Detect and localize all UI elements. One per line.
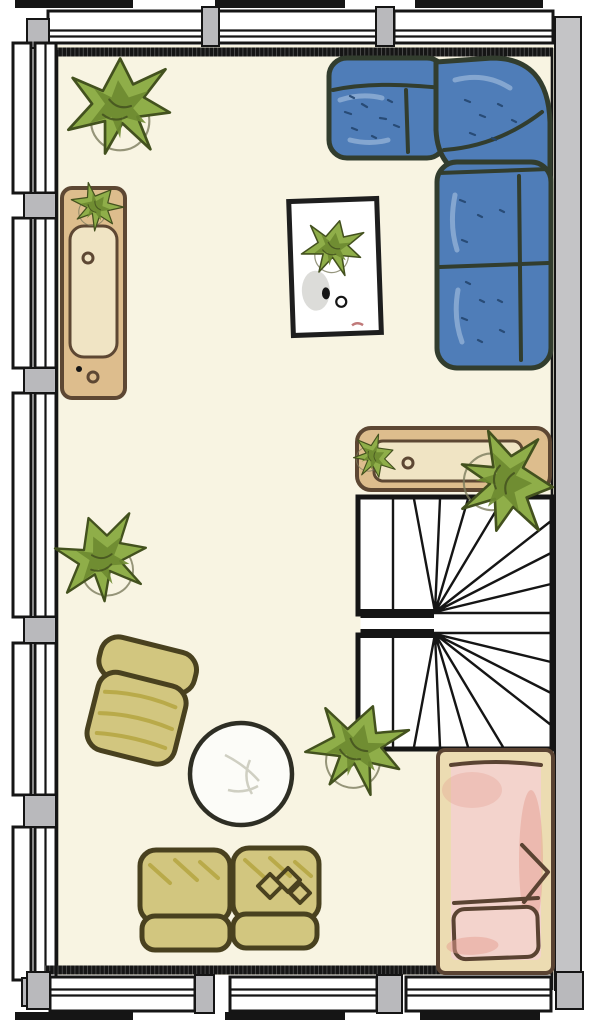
wall-left — [13, 43, 57, 1006]
cabinet-dot — [76, 366, 82, 372]
window-sill-tick — [420, 1012, 540, 1020]
window-sill-tick — [215, 0, 345, 8]
window — [394, 11, 553, 43]
wall-pillar — [24, 193, 56, 218]
table-top — [190, 723, 292, 825]
sofa-section-vertical — [437, 162, 551, 368]
stair-divider-bar — [358, 629, 434, 638]
window-sill-tick — [15, 1012, 133, 1020]
window-sill-tick — [225, 1012, 345, 1020]
loveseat-cushion-left — [140, 850, 230, 922]
window — [13, 43, 56, 193]
wall-pillar — [24, 795, 56, 827]
window — [13, 218, 56, 368]
round-coffee-table — [190, 723, 292, 825]
wall-pillar — [202, 7, 219, 46]
stair-divider-bar — [358, 609, 434, 618]
window — [13, 393, 56, 617]
window-sill-tick — [15, 0, 133, 8]
window — [218, 11, 377, 43]
loveseat — [140, 848, 319, 950]
wall-pillar — [195, 975, 214, 1013]
wall-right — [552, 17, 581, 990]
wall-bottom — [15, 970, 583, 1020]
window — [50, 977, 195, 1011]
window — [230, 977, 377, 1011]
loveseat-front-right — [233, 914, 317, 948]
sofa-section-horizontal — [329, 58, 445, 158]
wall-pillar — [24, 368, 56, 393]
bed — [438, 750, 553, 973]
cabinet-door — [70, 226, 117, 357]
loveseat-front-left — [142, 916, 230, 950]
corner-pillar — [556, 972, 583, 1009]
stairwell-enclosure — [358, 497, 552, 749]
picture-frame — [289, 199, 382, 336]
window — [406, 977, 551, 1011]
blanket-shading — [442, 772, 502, 808]
sofa-section-corner — [436, 58, 550, 177]
party-wall — [555, 17, 581, 990]
floor-plan-canvas — [0, 0, 600, 1020]
corner-pillar — [27, 972, 50, 1009]
stair-entry-opening — [353, 617, 361, 633]
window-sill-tick — [415, 0, 543, 8]
wall-pillar — [24, 617, 56, 643]
floor-plan — [0, 0, 600, 1020]
window — [48, 11, 203, 43]
wall-pillar — [377, 975, 402, 1013]
window — [13, 827, 56, 980]
picture-with-plant — [289, 199, 382, 336]
wall-top — [15, 0, 553, 52]
window — [13, 643, 56, 795]
wall-pillar — [376, 7, 394, 46]
staircase — [353, 497, 553, 749]
